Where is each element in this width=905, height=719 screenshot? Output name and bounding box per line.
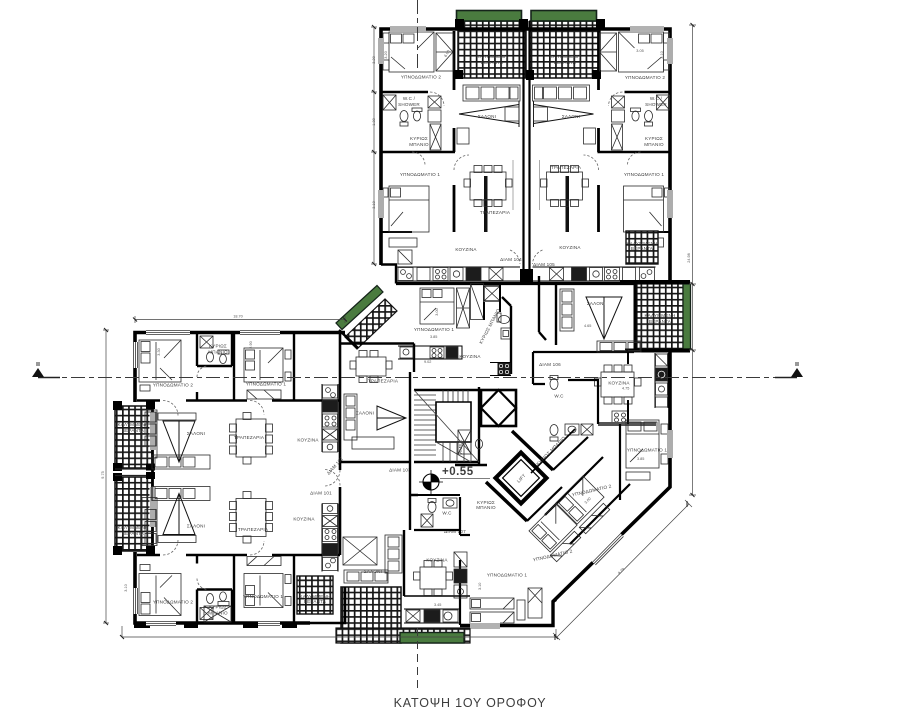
svg-text:ΥΠΝΟΔΩΜΑΤΙΟ 2: ΥΠΝΟΔΩΜΑΤΙΟ 2 (401, 75, 442, 80)
svg-text:9.02: 9.02 (424, 360, 431, 364)
svg-text:3.10: 3.10 (124, 584, 128, 591)
svg-text:ΚΥΡΙΩΣ: ΚΥΡΙΩΣ (410, 136, 428, 141)
svg-text:W.C /: W.C / (403, 96, 416, 101)
svg-text:2.90: 2.90 (249, 341, 253, 348)
svg-text:ΤΡΑΠΕΖΑΡΙΑ: ΤΡΑΠΕΖΑΡΙΑ (551, 165, 582, 170)
svg-text:3.20: 3.20 (372, 56, 376, 63)
svg-text:ΥΠΝΟΔΩΜΑΤΙΟ 1: ΥΠΝΟΔΩΜΑΤΙΟ 1 (400, 172, 441, 177)
svg-text:ΒΕΡΑΝΤΑ: ΒΕΡΑΝΤΑ (649, 319, 672, 324)
svg-text:ΔΙΑΜ 101: ΔΙΑΜ 101 (310, 491, 332, 496)
svg-text:ΤΡΑΠΕΖΑΡΙΑ: ΤΡΑΠΕΖΑΡΙΑ (368, 379, 399, 384)
svg-text:3.10: 3.10 (660, 51, 664, 58)
svg-text:ΣΑΛΟΝΙ: ΣΑΛΟΝΙ (187, 524, 205, 529)
svg-text:ΚΟΥΖΙΝΑ: ΚΟΥΖΙΝΑ (608, 381, 630, 386)
svg-text:4.65: 4.65 (584, 324, 591, 328)
svg-text:3.85: 3.85 (430, 335, 437, 339)
svg-text:9.75: 9.75 (101, 471, 105, 478)
svg-text:3.10: 3.10 (372, 201, 376, 208)
svg-text:ΚΟΥΖΙΝΑ: ΚΟΥΖΙΝΑ (459, 354, 481, 359)
svg-text:ΥΠΝΟΔΩΜΑΤΙΟ 1: ΥΠΝΟΔΩΜΑΤΙΟ 1 (246, 382, 287, 387)
svg-text:ΣΑΛΟΝΙ: ΣΑΛΟΝΙ (187, 431, 205, 436)
svg-text:ΔΙΑΜ 103: ΔΙΑΜ 103 (389, 468, 411, 473)
svg-text:ΥΠΝΟΔΩΜΑΤΙΟ 1: ΥΠΝΟΔΩΜΑΤΙΟ 1 (243, 594, 284, 599)
svg-text:3.85: 3.85 (637, 457, 644, 461)
svg-text:ΒΕΡΑΝΤΑ: ΒΕΡΑΝΤΑ (304, 599, 327, 604)
svg-text:ΚΟΥΖΙΝΑ: ΚΟΥΖΙΝΑ (559, 245, 581, 250)
svg-text:3.45: 3.45 (434, 603, 441, 607)
svg-text:ΥΠΝΟΔΩΜΑΤΙΟ 2: ΥΠΝΟΔΩΜΑΤΙΟ 2 (153, 600, 194, 605)
svg-text:ΣΑΛΟΝΙ: ΣΑΛΟΝΙ (356, 411, 374, 416)
svg-text:ΚΑΛΥΜΜΕΝΗ: ΚΑΛΥΜΜΕΝΗ (476, 54, 507, 59)
svg-text:ΔΙΑΜ 106: ΔΙΑΜ 106 (539, 362, 561, 367)
svg-text:ΜΠΑΝΙΟ: ΜΠΑΝΙΟ (208, 350, 228, 355)
svg-text:ΥΠΝΟΔΩΜΑΤΙΟ 2: ΥΠΝΟΔΩΜΑΤΙΟ 2 (625, 75, 666, 80)
svg-text:ΒΕΡΑΝΤΑ: ΒΕΡΑΝΤΑ (122, 428, 145, 433)
svg-text:ΚΟΥΖΙΝΑ: ΚΟΥΖΙΝΑ (293, 517, 315, 522)
svg-text:ΚΑΤΟΨΗ 1ΟΥ ΟΡΟΦΟΥ: ΚΑΤΟΨΗ 1ΟΥ ΟΡΟΦΟΥ (394, 696, 547, 710)
svg-text:ΣΑΛΟΝΙ: ΣΑΛΟΝΙ (478, 114, 496, 119)
svg-text:ΣΑΛΟΝΙ: ΣΑΛΟΝΙ (364, 569, 382, 574)
svg-text:ΤΡΑΠΕΖΑΡΙΑ: ΤΡΑΠΕΖΑΡΙΑ (238, 527, 269, 532)
svg-text:3.10: 3.10 (478, 583, 482, 590)
svg-text:ΚΥΡΙΩΣ: ΚΥΡΙΩΣ (209, 344, 227, 349)
svg-text:ΚΥΡΙΩΣ: ΚΥΡΙΩΣ (209, 605, 227, 610)
svg-text:ΜΠΑΝΙΟ: ΜΠΑΝΙΟ (476, 505, 496, 510)
svg-text:ΚΟΥΖΙΝΑ: ΚΟΥΖΙΝΑ (426, 558, 448, 563)
svg-text:ΥΠΝΟΔΩΜΑΤΙΟ 2: ΥΠΝΟΔΩΜΑΤΙΟ 2 (153, 383, 194, 388)
svg-text:18.70: 18.70 (233, 315, 243, 319)
svg-text:ΚΟΥΖΙΝΑ: ΚΟΥΖΙΝΑ (455, 247, 477, 252)
svg-text:ΚΑΛΥΜΜΕΝΗ: ΚΑΛΥΜΜΕΝΗ (117, 422, 148, 427)
svg-text:4.75: 4.75 (622, 387, 629, 391)
svg-text:SHOWER: SHOWER (398, 102, 420, 107)
svg-text:W.C: W.C (554, 394, 564, 399)
svg-text:ΜΠΑΝΙΟ: ΜΠΑΝΙΟ (409, 142, 429, 147)
svg-text:3.00: 3.00 (435, 308, 439, 315)
svg-text:ΒΕΡΑΝΤΑ: ΒΕΡΑΝΤΑ (122, 531, 145, 536)
svg-text:ΒΕΡΑΝΤΑ: ΒΕΡΑΝΤΑ (554, 60, 577, 65)
svg-text:ΥΠΝΟΔΩΜΑΤΙΟ 1: ΥΠΝΟΔΩΜΑΤΙΟ 1 (414, 327, 455, 332)
svg-text:3.30: 3.30 (157, 348, 161, 355)
svg-text:ΜΠΑΝΙΟ: ΜΠΑΝΙΟ (644, 142, 664, 147)
svg-text:ΣΑΛΟΝΙ: ΣΑΛΟΝΙ (562, 114, 580, 119)
svg-text:+0.55: +0.55 (442, 466, 474, 478)
svg-text:ΚΟΥΖΙΝΑ: ΚΟΥΖΙΝΑ (297, 438, 319, 443)
svg-text:ΥΠΝΟΔΩΜΑΤΙΟ 1: ΥΠΝΟΔΩΜΑΤΙΟ 1 (627, 448, 668, 453)
svg-text:ΒΕΡΑΝΤΑ: ΒΕΡΑΝΤΑ (631, 246, 654, 251)
svg-text:ΣΑΛΟΝΙ: ΣΑΛΟΝΙ (587, 301, 605, 306)
svg-text:24.98: 24.98 (687, 253, 691, 263)
svg-text:W.C: W.C (442, 511, 452, 516)
svg-text:ΤΡΑΠΕΖΑΡΙΑ: ΤΡΑΠΕΖΑΡΙΑ (234, 435, 265, 440)
svg-text:1.30: 1.30 (372, 118, 376, 125)
svg-text:W.C /: W.C / (650, 96, 663, 101)
svg-text:ΚΑΛΥΜΜΕΝΗ: ΚΑΛΥΜΜΕΝΗ (549, 54, 580, 59)
svg-text:ΥΠΝΟΔΩΜΑΤΙΟ 1: ΥΠΝΟΔΩΜΑΤΙΟ 1 (624, 172, 665, 177)
svg-text:ΤΡΑΠΕΖΑΡΙΑ: ΤΡΑΠΕΖΑΡΙΑ (480, 210, 511, 215)
svg-text:3.20: 3.20 (384, 51, 388, 58)
svg-text:ΚΥΡΙΩΣ: ΚΥΡΙΩΣ (645, 136, 663, 141)
svg-text:ΔΙΑΜ 104: ΔΙΑΜ 104 (500, 257, 522, 262)
svg-text:ΔΙΑΜ 105: ΔΙΑΜ 105 (533, 262, 555, 267)
svg-text:SHOWER: SHOWER (645, 102, 667, 107)
svg-text:ΒΕΡΑΝΤΑ: ΒΕΡΑΝΤΑ (481, 60, 504, 65)
svg-text:ΥΠΝΟΔΩΜΑΤΙΟ 1: ΥΠΝΟΔΩΜΑΤΙΟ 1 (487, 573, 528, 578)
svg-text:ΚΑΛΥΜΜΕΝΗ: ΚΑΛΥΜΜΕΝΗ (644, 313, 675, 318)
svg-text:3.05: 3.05 (636, 49, 643, 53)
svg-text:ΚΑΛΥΜΜΕΝΗ: ΚΑΛΥΜΜΕΝΗ (117, 525, 148, 530)
svg-text:ΑΜΕΑ: ΑΜΕΑ (458, 439, 463, 454)
